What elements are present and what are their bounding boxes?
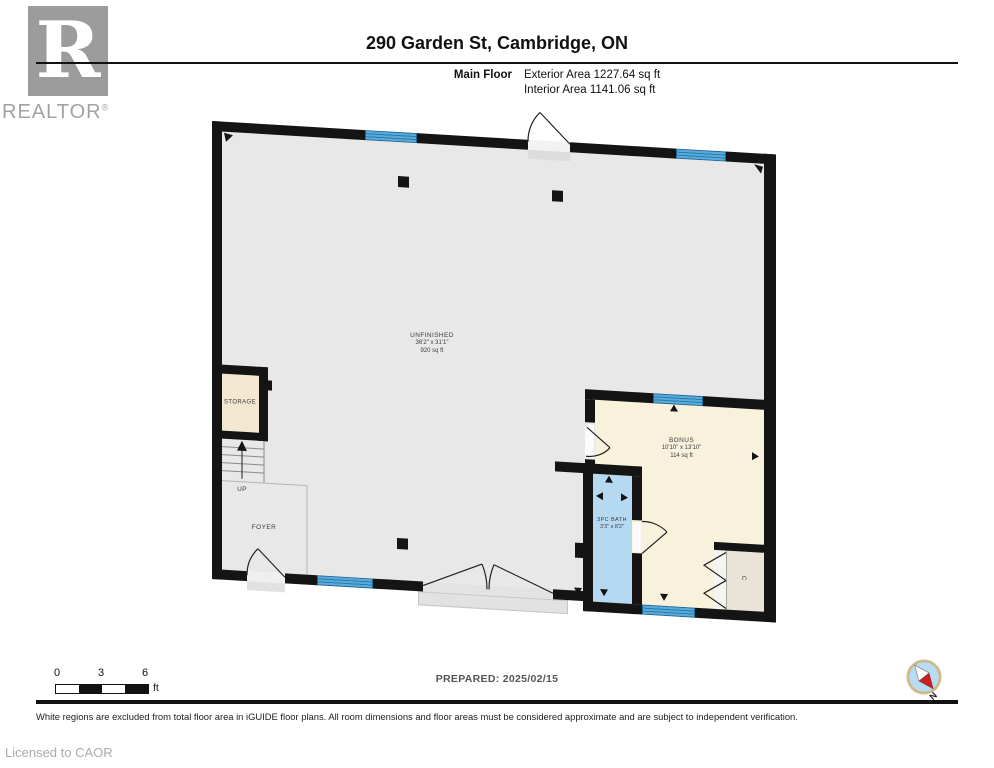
interior-area: Interior Area 1141.06 sq ft — [524, 84, 660, 96]
page-title: 290 Garden St, Cambridge, ON — [0, 33, 994, 54]
room-bath-label: 3PC BATH 3'3" x 8'2" — [582, 517, 642, 531]
registered-mark: ® — [102, 102, 110, 112]
prepared-date: PREPARED: 2025/02/15 — [0, 673, 994, 685]
room-storage-label: STORAGE — [218, 400, 262, 408]
floor-plan-page: R REALTOR® 290 Garden St, Cambridge, ON … — [0, 0, 994, 768]
closet-label: C — [738, 572, 746, 584]
bonus-door-swing — [586, 427, 610, 457]
corner-mark — [754, 164, 763, 174]
room-bonus-label: BONUS 10'10" x 13'10" 114 sq ft — [629, 437, 734, 460]
direction-arrow — [600, 589, 608, 596]
entry-door-swing — [528, 112, 570, 144]
direction-arrow — [660, 594, 668, 601]
room-unfinished-label: UNFINISHED 36'2" x 31'1" 920 sq ft — [372, 332, 492, 355]
exterior-area: Exterior Area 1227.64 sq ft — [524, 69, 660, 81]
left-door-swing — [247, 548, 285, 577]
realtor-logo-text: REALTOR® — [2, 101, 109, 124]
footer-divider — [36, 700, 958, 704]
header-divider — [36, 62, 958, 64]
stairs-up-label: UP — [222, 486, 262, 494]
stair-arrow-head — [237, 440, 247, 451]
double-door-swing — [423, 561, 553, 594]
closet-bifold-doors — [704, 551, 726, 608]
direction-arrow — [605, 475, 613, 482]
room-foyer-label: FOYER — [234, 524, 294, 532]
direction-arrow — [574, 588, 582, 595]
floor-plan: UNFINISHED 36'2" x 31'1" 920 sq ft BONUS… — [212, 121, 776, 647]
direction-arrow — [752, 452, 759, 460]
corner-mark — [224, 133, 233, 143]
direction-arrow — [670, 404, 678, 411]
bath-door-swing — [642, 521, 667, 555]
disclaimer-text: White regions are excluded from total fl… — [36, 711, 966, 722]
license-text: Licensed to CAOR — [5, 745, 113, 760]
plan-linework — [212, 76, 776, 647]
direction-arrow — [621, 493, 628, 501]
compass-icon: N — [903, 658, 947, 702]
direction-arrow — [596, 492, 603, 500]
scale-bar — [55, 684, 149, 694]
